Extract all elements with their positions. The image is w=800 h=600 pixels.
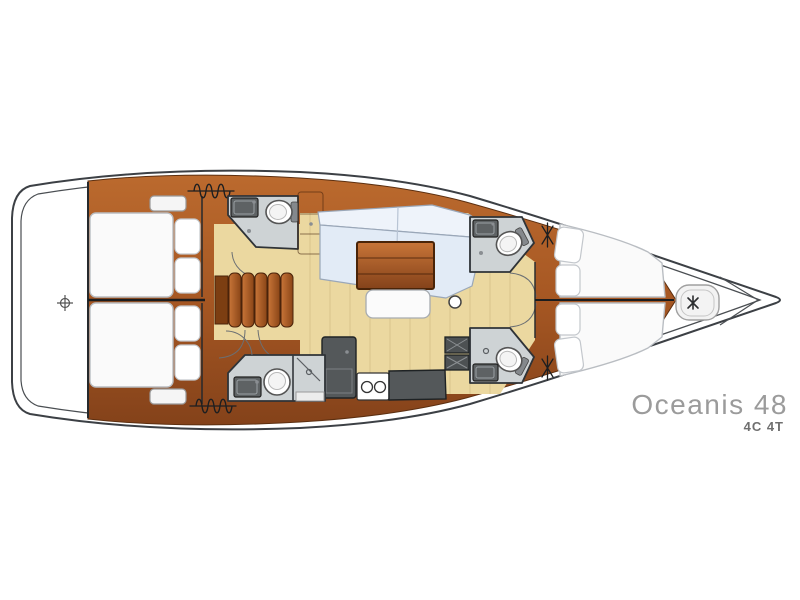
pillow [554, 336, 584, 373]
pillow [554, 226, 584, 263]
sink-icon [473, 364, 498, 381]
pillow [175, 345, 200, 380]
title-block: Oceanis 48 4C 4T [631, 390, 788, 434]
galley-sink-icon [445, 337, 469, 370]
pillow [556, 265, 580, 296]
mast-post [449, 296, 461, 308]
galley-counter [389, 370, 446, 400]
toilet-icon [264, 369, 290, 395]
layout-config-label: 4C 4T [631, 420, 788, 434]
salon-bench [366, 290, 430, 318]
sink-icon [231, 198, 258, 217]
sink-icon [473, 220, 498, 237]
double-bed [90, 303, 173, 387]
double-bed [90, 213, 173, 297]
anchor-windlass-icon [676, 285, 719, 320]
salon-table [357, 242, 434, 289]
sink-icon [234, 377, 261, 397]
boat-floor-plan: Oceanis 48 4C 4T [0, 0, 800, 600]
boat-model-label: Oceanis 48 [631, 390, 788, 419]
floor-plan-canvas [0, 0, 800, 600]
deck-hatch [150, 389, 186, 404]
forward-cabin-port [554, 224, 665, 297]
galley-counter [322, 337, 356, 398]
pillow [175, 306, 200, 341]
toilet-icon [266, 201, 298, 224]
pillow [175, 258, 200, 293]
forward-cabin-starboard [554, 303, 665, 376]
pillow [556, 304, 580, 335]
pillow [175, 219, 200, 254]
twin-burner-icon [357, 373, 389, 400]
deck-hatch [150, 196, 186, 211]
